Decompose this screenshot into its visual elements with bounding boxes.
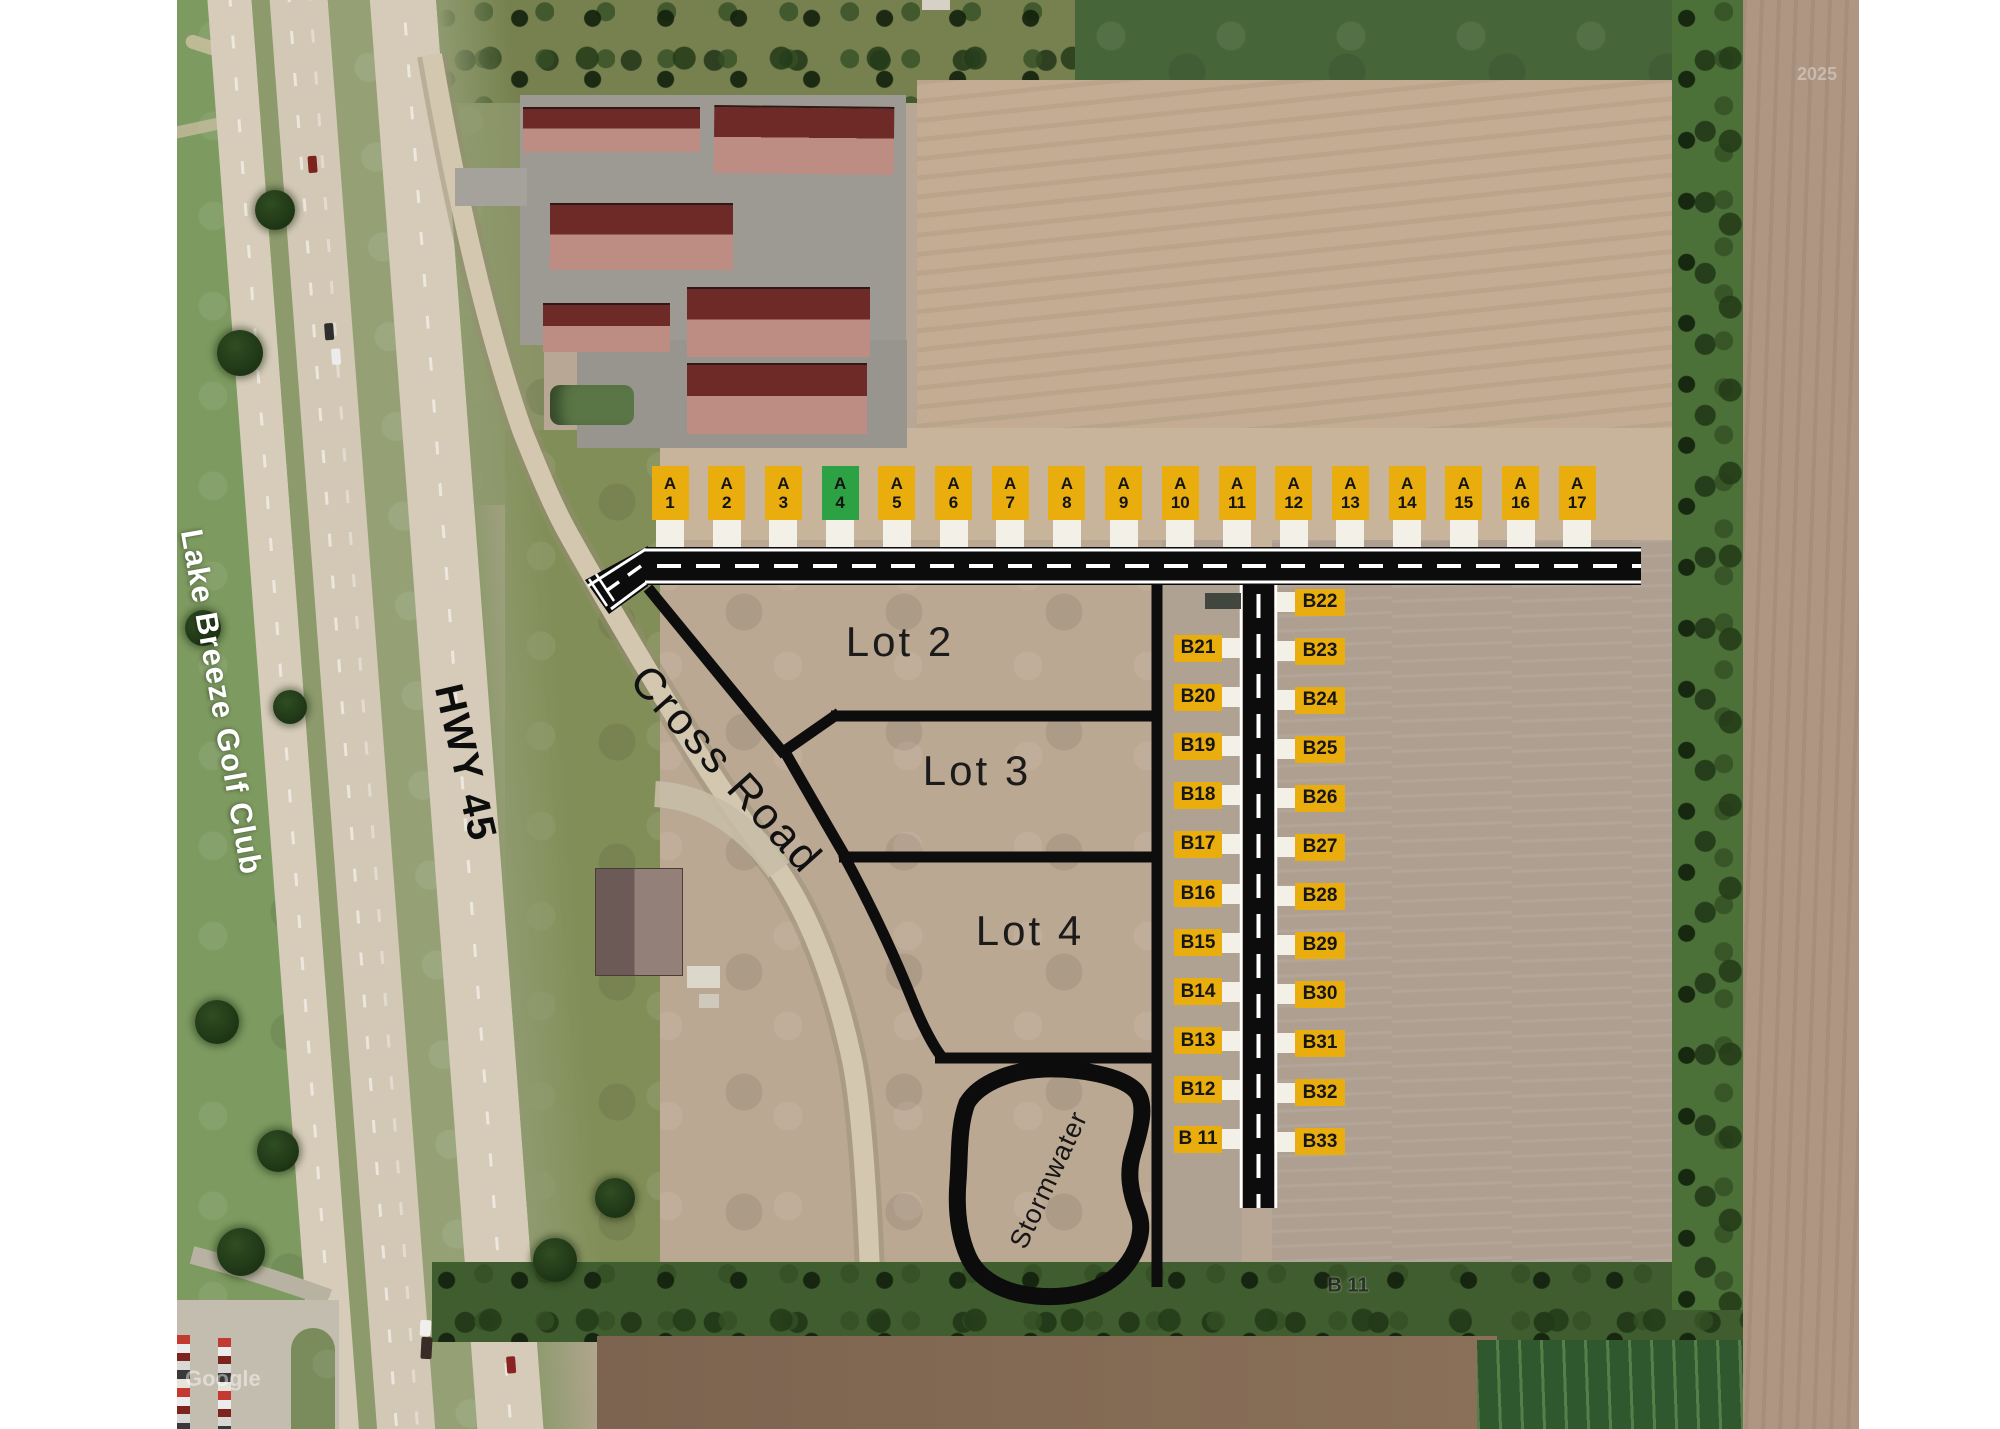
existing-structure-marker: [1205, 593, 1241, 609]
marker-letter: A: [721, 474, 733, 493]
marker-stem: [1222, 1129, 1240, 1149]
marker-stem: [1222, 785, 1240, 805]
marker-letter: A: [1117, 474, 1129, 493]
marker-stem: [1277, 886, 1295, 906]
marker-number: 10: [1171, 493, 1190, 512]
marker-letter: A: [1514, 474, 1526, 493]
marker-number: 16: [1511, 493, 1530, 512]
marker-letter: A: [891, 474, 903, 493]
lot-marker-b29[interactable]: B29: [1295, 932, 1345, 959]
marker-stem: [1277, 1033, 1295, 1053]
marker-stem: [1277, 1083, 1295, 1103]
lot4-label: Lot 4: [976, 907, 1084, 955]
lot-marker-b17[interactable]: B17: [1174, 831, 1222, 858]
marker-letter: A: [1401, 474, 1413, 493]
marker-stem: [1277, 690, 1295, 710]
lot-marker-a3[interactable]: A3: [765, 466, 802, 520]
ghost-b11-label: B 11: [1327, 1275, 1368, 1298]
marker-letter: A: [1288, 474, 1300, 493]
marker-number: 2: [722, 493, 731, 512]
site-plan-map: A1A2A3A4A5A6A7A8A9A10A11A12A13A14A15A16A…: [0, 0, 2000, 1429]
marker-number: 9: [1119, 493, 1128, 512]
lot-marker-b27[interactable]: B27: [1295, 834, 1345, 861]
lot-marker-a10[interactable]: A10: [1162, 466, 1199, 520]
lot-marker-a9[interactable]: A9: [1105, 466, 1142, 520]
marker-stem: [826, 520, 854, 547]
marker-stem: [1277, 641, 1295, 661]
marker-number: 6: [949, 493, 958, 512]
imagery-year-watermark: 2025: [1797, 64, 1837, 85]
lot-marker-a6[interactable]: A6: [935, 466, 972, 520]
lot-marker-b23[interactable]: B23: [1295, 638, 1345, 665]
marker-stem: [1166, 520, 1194, 547]
marker-letter: A: [1231, 474, 1243, 493]
marker-stem: [1277, 837, 1295, 857]
marker-stem: [1507, 520, 1535, 547]
lot-marker-b32[interactable]: B32: [1295, 1079, 1345, 1106]
marker-stem: [1222, 1080, 1240, 1100]
marker-stem: [1277, 984, 1295, 1004]
marker-number: 5: [892, 493, 901, 512]
lot-marker-a7[interactable]: A7: [992, 466, 1029, 520]
marker-stem: [769, 520, 797, 547]
marker-letter: A: [1004, 474, 1016, 493]
marker-letter: A: [947, 474, 959, 493]
marker-stem: [1280, 520, 1308, 547]
marker-stem: [1223, 520, 1251, 547]
lot-marker-b19[interactable]: B19: [1174, 733, 1222, 760]
lot-marker-b21[interactable]: B21: [1174, 635, 1222, 662]
marker-stem: [940, 520, 968, 547]
lot-marker-a4[interactable]: A4: [822, 466, 859, 520]
lot-marker-a12[interactable]: A12: [1275, 466, 1312, 520]
marker-stem: [1222, 834, 1240, 854]
marker-letter: A: [1571, 474, 1583, 493]
lot-marker-b26[interactable]: B26: [1295, 785, 1345, 812]
marker-stem: [1222, 1031, 1240, 1051]
lot2-label: Lot 2: [846, 618, 954, 666]
marker-stem: [656, 520, 684, 547]
marker-stem: [1277, 788, 1295, 808]
aerial-map-canvas: A1A2A3A4A5A6A7A8A9A10A11A12A13A14A15A16A…: [177, 0, 1859, 1429]
lot-marker-b18[interactable]: B18: [1174, 782, 1222, 809]
lot-boundaries: [648, 585, 1162, 1287]
marker-number: 12: [1284, 493, 1303, 512]
marker-stem: [996, 520, 1024, 547]
lot-marker-b30[interactable]: B30: [1295, 981, 1345, 1008]
lot-marker-b11[interactable]: B 11: [1174, 1126, 1222, 1153]
marker-letter: A: [1458, 474, 1470, 493]
lot-marker-b22[interactable]: B22: [1295, 589, 1345, 616]
lot-marker-a14[interactable]: A14: [1389, 466, 1426, 520]
marker-stem: [1222, 638, 1240, 658]
lot-marker-b24[interactable]: B24: [1295, 687, 1345, 714]
lot-marker-b20[interactable]: B20: [1174, 684, 1222, 711]
lot-marker-b14[interactable]: B14: [1174, 978, 1222, 1005]
marker-number: 14: [1398, 493, 1417, 512]
marker-number: 3: [779, 493, 788, 512]
marker-number: 8: [1062, 493, 1071, 512]
lot-marker-b16[interactable]: B16: [1174, 880, 1222, 907]
lot-marker-b12[interactable]: B12: [1174, 1076, 1222, 1103]
lot-marker-b31[interactable]: B31: [1295, 1030, 1345, 1057]
marker-stem: [1450, 520, 1478, 547]
lot-marker-a1[interactable]: A1: [652, 466, 689, 520]
marker-number: 13: [1341, 493, 1360, 512]
lot-marker-b33[interactable]: B33: [1295, 1128, 1345, 1155]
marker-letter: A: [834, 474, 846, 493]
lot-marker-b25[interactable]: B25: [1295, 736, 1345, 763]
marker-stem: [713, 520, 741, 547]
marker-stem: [1222, 687, 1240, 707]
marker-stem: [1053, 520, 1081, 547]
marker-stem: [1222, 736, 1240, 756]
marker-letter: A: [1174, 474, 1186, 493]
lot-marker-a16[interactable]: A16: [1502, 466, 1539, 520]
lot-marker-b15[interactable]: B15: [1174, 929, 1222, 956]
lot3-label: Lot 3: [923, 747, 1031, 795]
marker-number: 7: [1005, 493, 1014, 512]
lot-marker-a17[interactable]: A17: [1559, 466, 1596, 520]
marker-number: 4: [835, 493, 844, 512]
marker-letter: A: [1344, 474, 1356, 493]
lot-marker-b28[interactable]: B28: [1295, 883, 1345, 910]
marker-stem: [883, 520, 911, 547]
marker-stem: [1222, 933, 1240, 953]
marker-number: 15: [1454, 493, 1473, 512]
marker-stem: [1110, 520, 1138, 547]
marker-stem: [1393, 520, 1421, 547]
marker-stem: [1222, 884, 1240, 904]
marker-stem: [1563, 520, 1591, 547]
marker-stem: [1277, 592, 1295, 612]
marker-letter: A: [777, 474, 789, 493]
marker-stem: [1222, 982, 1240, 1002]
marker-stem: [1277, 1132, 1295, 1152]
marker-letter: A: [664, 474, 676, 493]
lot-marker-a13[interactable]: A13: [1332, 466, 1369, 520]
marker-stem: [1277, 935, 1295, 955]
marker-letter: A: [1061, 474, 1073, 493]
map-provider-watermark: Google: [185, 1366, 261, 1392]
marker-stem: [1277, 739, 1295, 759]
marker-number: 17: [1568, 493, 1587, 512]
lot-marker-a5[interactable]: A5: [878, 466, 915, 520]
lot-marker-a15[interactable]: A15: [1445, 466, 1482, 520]
marker-number: 1: [665, 493, 674, 512]
lot-marker-a8[interactable]: A8: [1048, 466, 1085, 520]
lot-marker-a11[interactable]: A11: [1219, 466, 1256, 520]
lot-marker-b13[interactable]: B13: [1174, 1027, 1222, 1054]
marker-stem: [1336, 520, 1364, 547]
lot-marker-a2[interactable]: A2: [708, 466, 745, 520]
marker-number: 11: [1228, 493, 1246, 512]
